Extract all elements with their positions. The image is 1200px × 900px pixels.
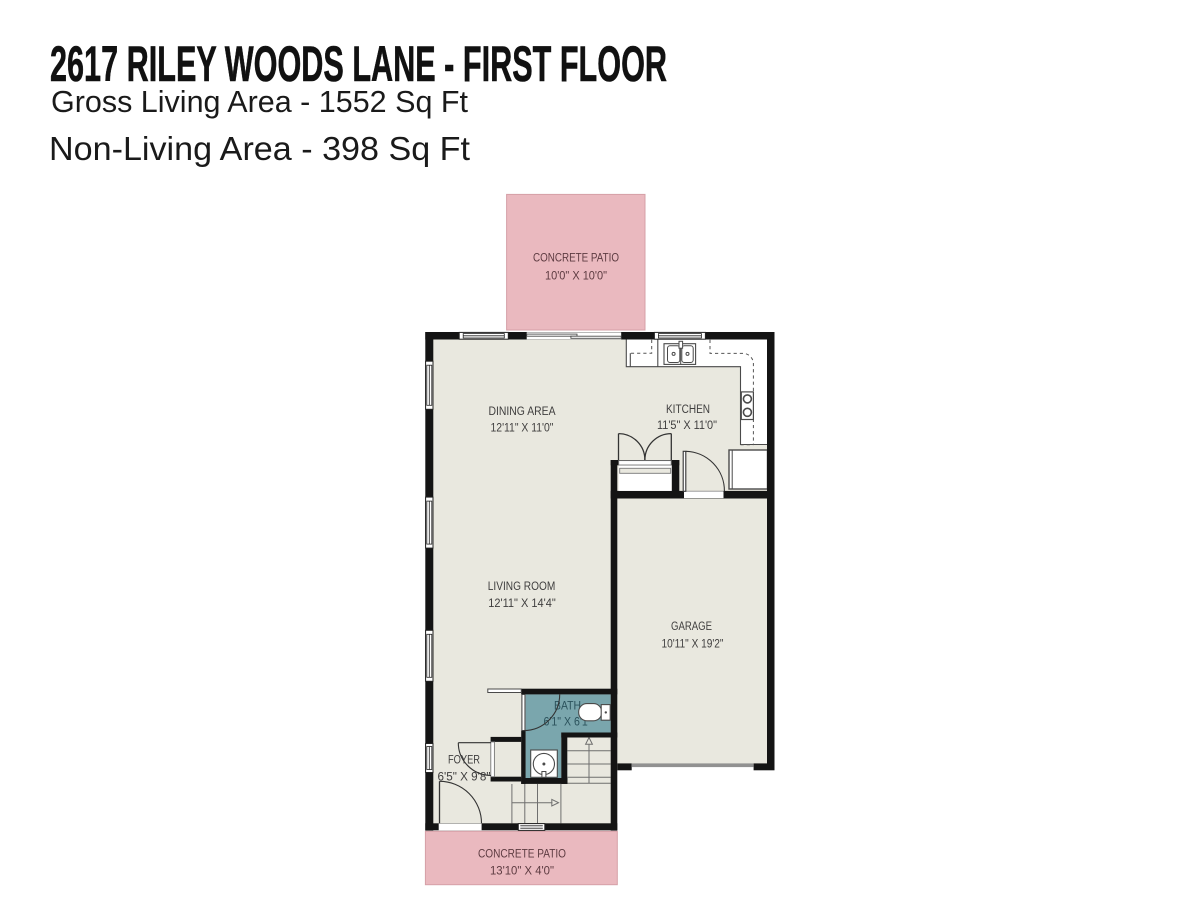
svg-text:13'10" X 4'0": 13'10" X 4'0" bbox=[490, 864, 554, 878]
svg-text:11'5" X 11'0": 11'5" X 11'0" bbox=[657, 418, 717, 432]
svg-text:DINING AREA: DINING AREA bbox=[489, 404, 557, 418]
svg-text:CONCRETE PATIO: CONCRETE PATIO bbox=[533, 250, 619, 264]
svg-text:Gross Living Area - 1552 Sq Ft: Gross Living Area - 1552 Sq Ft bbox=[51, 84, 468, 119]
svg-text:Non-Living Area - 398 Sq Ft: Non-Living Area - 398 Sq Ft bbox=[49, 130, 470, 167]
svg-text:10'0" X 10'0": 10'0" X 10'0" bbox=[545, 268, 607, 282]
svg-text:GARAGE: GARAGE bbox=[671, 619, 712, 633]
svg-text:KITCHEN: KITCHEN bbox=[666, 402, 710, 416]
svg-text:CONCRETE PATIO: CONCRETE PATIO bbox=[478, 846, 566, 860]
svg-text:FOYER: FOYER bbox=[448, 753, 480, 767]
svg-text:12'11" X 14'4": 12'11" X 14'4" bbox=[488, 596, 556, 610]
svg-text:12'11" X 11'0": 12'11" X 11'0" bbox=[491, 420, 554, 434]
svg-text:LIVING ROOM: LIVING ROOM bbox=[488, 579, 556, 593]
svg-text:10'11" X 19'2": 10'11" X 19'2" bbox=[662, 637, 724, 651]
